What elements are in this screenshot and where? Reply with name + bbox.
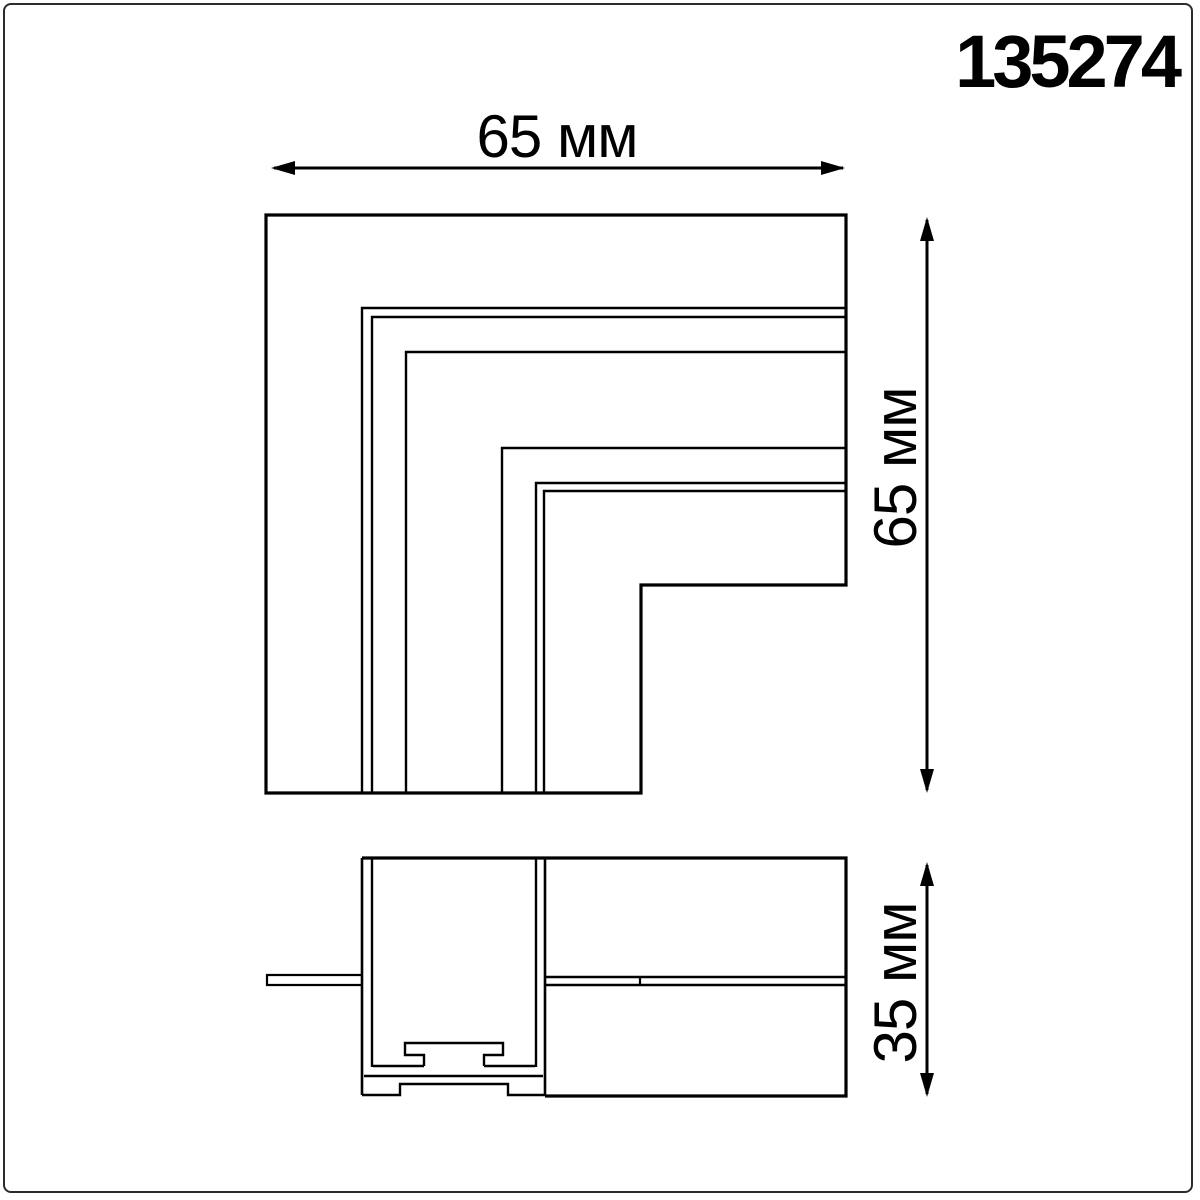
plan-profile-line-4 (502, 448, 846, 793)
plan-profile-line-5 (536, 483, 846, 793)
plan-profile-line-6 (544, 491, 846, 793)
plan-profile-line-1 (362, 308, 846, 793)
dim-section-height-arrow-bottom (920, 1073, 934, 1097)
technical-drawing: 65 мм 65 мм 35 мм 135274 (0, 0, 1200, 1200)
plan-profile-line-3 (406, 352, 846, 793)
plan-profile-line-2 (372, 317, 846, 793)
dimension-side-height: 65 мм (862, 217, 934, 793)
dim-side-height-label: 65 мм (862, 388, 929, 549)
dim-top-width-arrow-right (821, 161, 845, 175)
dim-side-height-arrow-bottom (920, 769, 934, 793)
dim-side-height-arrow-top (920, 217, 934, 241)
section-base-feet (362, 1084, 545, 1095)
product-code: 135274 (955, 20, 1182, 103)
dim-section-height-label: 35 мм (862, 903, 929, 1064)
dim-top-width-arrow-left (271, 161, 295, 175)
plan-view (266, 215, 846, 793)
section-center-boss (405, 1043, 503, 1066)
section-view (267, 858, 846, 1096)
dim-top-width-label: 65 мм (477, 103, 638, 170)
dimension-top-width: 65 мм (271, 103, 845, 175)
dim-section-height-arrow-top (920, 862, 934, 886)
dimension-section-height: 35 мм (862, 862, 934, 1097)
plan-outer-contour (266, 215, 846, 793)
section-left-flange (267, 975, 362, 985)
